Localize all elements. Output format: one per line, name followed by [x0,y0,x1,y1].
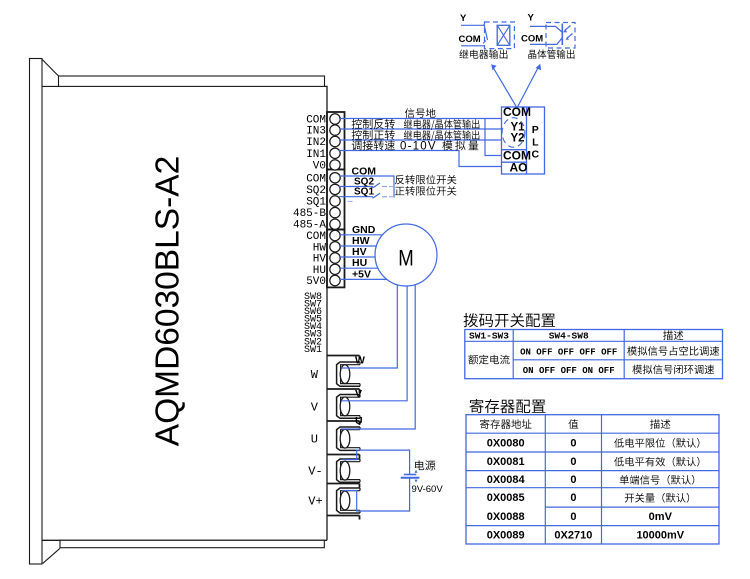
svg-text:V-: V- [308,465,322,479]
svg-text:0: 0 [570,437,576,449]
svg-text:Y: Y [528,13,535,24]
svg-text:V: V [355,388,362,400]
svg-text:P: P [532,124,539,136]
svg-text:485-A: 485-A [293,220,326,232]
svg-text:W: W [311,368,319,382]
svg-text:0: 0 [570,456,576,468]
svg-text:SW1-SW3: SW1-SW3 [469,331,509,342]
svg-text:Y: Y [460,13,467,24]
svg-text:M: M [398,245,414,270]
svg-text:COM: COM [306,231,326,243]
svg-text:0X0080: 0X0080 [487,437,525,449]
svg-text:L: L [532,136,539,148]
svg-text:IN1: IN1 [306,149,326,161]
svg-text:SQ1: SQ1 [306,197,326,209]
svg-text:COM: COM [503,105,531,119]
svg-text:0X2710: 0X2710 [554,530,592,542]
svg-text:COM: COM [459,34,481,45]
svg-text:GND: GND [352,224,376,236]
svg-text:COM: COM [306,173,326,185]
svg-text:V0: V0 [313,160,326,172]
svg-text:ON OFF OFF OFF OFF: ON OFF OFF OFF OFF [520,347,617,357]
svg-text:5V0: 5V0 [306,276,326,288]
svg-text:0-10V: 0-10V [400,141,437,153]
svg-text:COM: COM [521,34,543,45]
svg-text:0X0081: 0X0081 [487,456,525,468]
svg-text:0X0085: 0X0085 [487,492,525,504]
svg-text:V+: V+ [308,495,322,509]
svg-text:AO: AO [510,161,528,175]
svg-text:0mV: 0mV [649,511,673,523]
svg-text:HU: HU [352,257,367,269]
svg-text:SQ2: SQ2 [306,185,326,197]
svg-text:V: V [311,401,319,415]
svg-text:0X0089: 0X0089 [487,530,525,542]
svg-text:0: 0 [570,474,576,486]
svg-text:HW: HW [313,242,327,254]
svg-text:9V-60V: 9V-60V [412,484,444,495]
svg-text:0X0088: 0X0088 [487,511,525,523]
svg-text:0: 0 [570,511,576,523]
svg-text:HV: HV [352,246,367,258]
svg-text:SW1: SW1 [304,345,322,356]
svg-text:10000mV: 10000mV [636,530,684,542]
svg-text:+5V: +5V [352,268,371,280]
svg-text:SQ1: SQ1 [354,187,374,198]
svg-text:0X0084: 0X0084 [487,474,526,486]
svg-text:0: 0 [570,492,576,504]
svg-text:HU: HU [313,265,326,277]
svg-text:485-B: 485-B [293,208,326,220]
svg-text:W: W [355,355,365,367]
svg-text:IN2: IN2 [306,137,326,149]
svg-text:C: C [532,149,540,161]
svg-text:HV: HV [313,254,327,266]
svg-text:U: U [311,433,318,447]
svg-text:U: U [355,415,363,427]
svg-text:ON OFF OFF ON OFF: ON OFF OFF ON OFF [523,366,615,376]
svg-text:AQMD6030BLS-A2: AQMD6030BLS-A2 [150,156,187,446]
svg-text:IN3: IN3 [306,126,326,138]
svg-text:SW4-SW8: SW4-SW8 [549,331,589,342]
